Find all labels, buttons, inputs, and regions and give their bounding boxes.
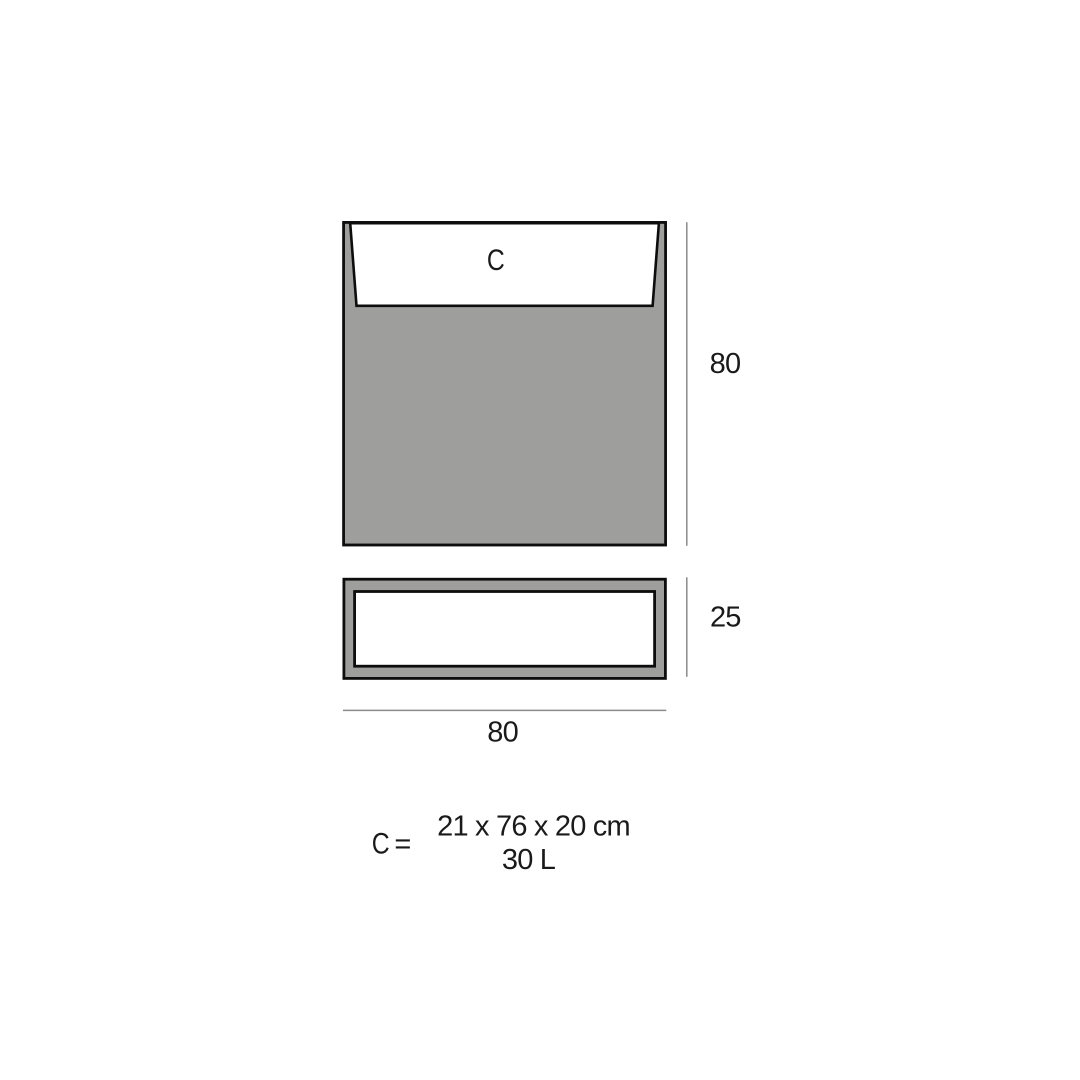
svg-text:30 L: 30 L <box>502 844 556 876</box>
svg-text:25: 25 <box>710 602 741 634</box>
svg-text:80: 80 <box>487 717 518 749</box>
svg-text:C: C <box>487 243 505 277</box>
svg-text:=: = <box>394 829 411 861</box>
svg-text:C: C <box>372 826 390 860</box>
svg-text:80: 80 <box>710 348 741 380</box>
svg-text:21 x 76 x 20 cm: 21 x 76 x 20 cm <box>437 810 630 842</box>
